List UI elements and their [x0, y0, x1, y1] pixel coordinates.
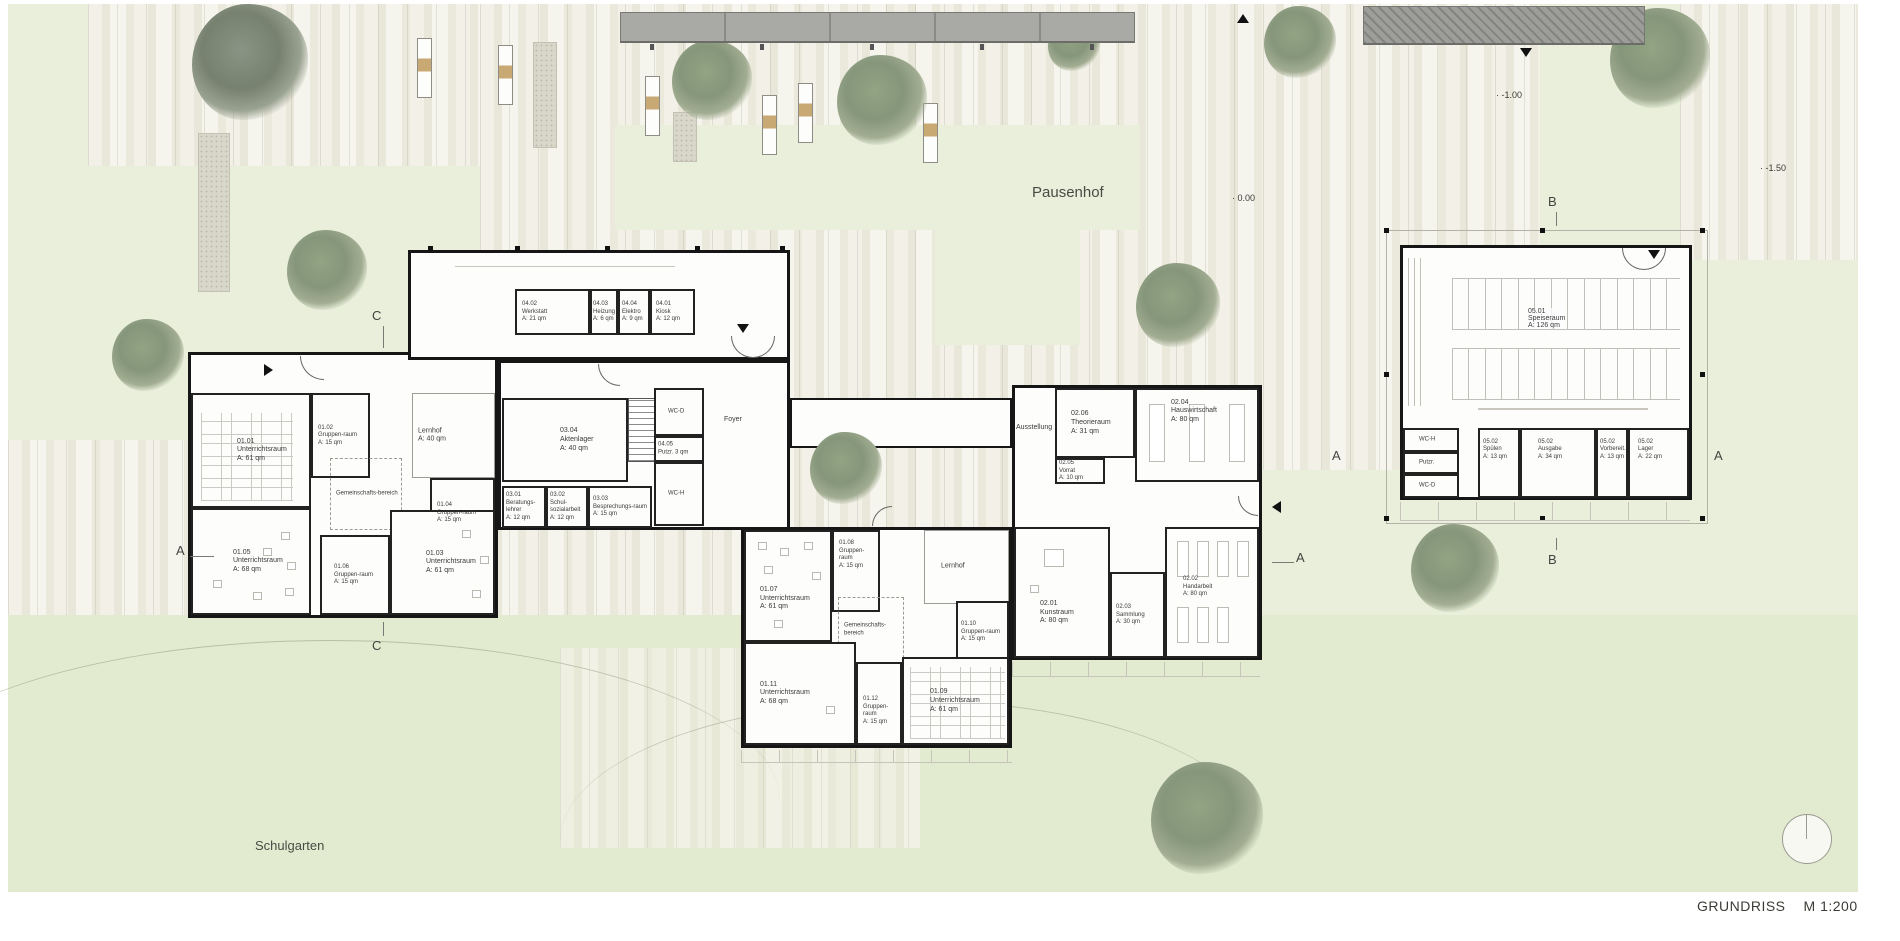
- existing-building-northeast: [1363, 6, 1645, 45]
- planter-hedge: [198, 133, 230, 292]
- room-0112: 01.12Gruppen-raumA: 15 qm: [856, 662, 902, 745]
- section-mark-c-top: C: [372, 308, 381, 323]
- entry-arrow: [1520, 48, 1532, 57]
- room-0502-lager: 05.02LagerA: 22 qm: [1628, 428, 1689, 498]
- elevation-mark-1: · -1.00: [1496, 90, 1522, 100]
- steps-south-cluster2: [741, 750, 1012, 763]
- site-plan-drawing: 01.01UnterrichtsraumA: 61 qm 01.02Gruppe…: [0, 0, 1900, 941]
- room-0502-vorbereitung: 05.02Vorbereit.A: 13 qm: [1596, 428, 1628, 498]
- bench: [923, 103, 938, 163]
- serving-counter-line: [1478, 408, 1648, 410]
- bench: [645, 76, 660, 136]
- section-mark-c-bottom: C: [372, 638, 381, 653]
- schulgarten-label: Schulgarten: [255, 838, 324, 853]
- room-0111: 01.11UnterrichtsraumA: 68 qm: [744, 642, 856, 745]
- room-wc-h-canteen: WC-H: [1403, 428, 1459, 452]
- column: [428, 246, 433, 251]
- column-post: [650, 44, 654, 50]
- section-line: [1272, 562, 1294, 563]
- elevation-mark-0: · 0.00: [1232, 193, 1255, 203]
- clerestory-window: [455, 266, 675, 267]
- section-line: [190, 556, 214, 557]
- room-0202: 02.02HandarbeitA: 80 qm: [1165, 527, 1259, 658]
- room-foyer-label: Foyer: [724, 416, 742, 423]
- room-putzraum-canteen: Putzr.: [1403, 452, 1459, 474]
- room-0205: 02.05VorratA: 10 qm: [1055, 458, 1105, 484]
- entry-arrow-specialist: [1272, 501, 1281, 513]
- section-line: [383, 622, 384, 636]
- section-mark-b-top: B: [1548, 194, 1557, 209]
- column: [605, 246, 610, 251]
- bench: [417, 38, 432, 98]
- cloakroom-lines: [1408, 258, 1426, 406]
- bench: [762, 95, 777, 155]
- column: [1384, 372, 1389, 377]
- room-0301: 03.01Beratungs-lehrerA: 12 qm: [502, 486, 546, 528]
- north-indicator: [1782, 814, 1832, 864]
- column: [695, 246, 700, 251]
- column-post: [980, 44, 984, 50]
- column: [1700, 372, 1705, 377]
- elevation-mark-2: · -1.50: [1760, 163, 1786, 173]
- column: [515, 246, 520, 251]
- section-mark-a-right: A: [1296, 550, 1305, 565]
- drawing-title: GRUNDRISSM 1:200: [1697, 898, 1876, 914]
- room-0105: 01.05UnterrichtsraumA: 68 qm: [191, 508, 311, 615]
- room-0402: 04.02WerkstattA: 21 qm: [515, 289, 590, 335]
- column: [1384, 228, 1389, 233]
- room-0501-label: 05.01SpeiseraumA: 126 qm: [1528, 308, 1565, 329]
- room-0405-putzraum: 04.05Putzr. 3 qm: [654, 436, 704, 462]
- room-0106: 01.06Gruppen-raumA: 15 qm: [320, 535, 390, 615]
- room-0303: 03.03Besprechungs-raumA: 15 qm: [588, 486, 652, 528]
- room-0304: 03.04AktenlagerA: 40 qm: [502, 398, 628, 482]
- existing-building-north: [620, 12, 1135, 43]
- room-wc-d: WC-D: [654, 388, 704, 436]
- section-mark-a-left: A: [176, 543, 185, 558]
- column: [1700, 516, 1705, 521]
- entry-arrow-cluster1: [264, 364, 273, 376]
- room-0404: 04.04ElektroA: 9 qm: [618, 289, 650, 335]
- entry-arrow-workshop: [737, 324, 749, 333]
- room-wc-d-canteen: WC-D: [1403, 474, 1459, 498]
- section-mark-a-canteen-left: A: [1332, 448, 1341, 463]
- column: [1540, 228, 1545, 233]
- room-lernhof-east: Lernhof: [924, 530, 1009, 604]
- room-0206: 02.06TheorieraumA: 31 qm: [1055, 388, 1135, 458]
- column-post: [760, 44, 764, 50]
- room-0109: 01.09UnterrichtsraumA: 61 qm: [902, 657, 1009, 745]
- room-lernhof-west: LernhofA: 40 qm: [412, 393, 495, 478]
- section-line: [1556, 212, 1557, 226]
- column-post: [1090, 44, 1094, 50]
- room-0302: 03.02Schul-sozialarbeitA: 12 qm: [546, 486, 588, 528]
- steps-south-canteen: [1400, 502, 1690, 521]
- pausenhof-label: Pausenhof: [1032, 184, 1104, 201]
- bench: [498, 45, 513, 105]
- steps-south-specialist: [1012, 662, 1260, 677]
- room-0502-spuelen: 05.02SpülenA: 13 qm: [1478, 428, 1520, 498]
- grass-patch-mid: [935, 230, 1080, 345]
- room-wc-h: WC-H: [654, 462, 704, 526]
- planter-hedge-3: [673, 112, 697, 162]
- north-entry-arrow: [1237, 14, 1249, 23]
- column: [1700, 228, 1705, 233]
- room-0101: 01.01UnterrichtsraumA: 61 qm: [191, 393, 311, 508]
- section-mark-a-canteen-right: A: [1714, 448, 1723, 463]
- room-0502-ausgabe: 05.02AusgabeA: 34 qm: [1520, 428, 1596, 498]
- staircase: [628, 398, 656, 462]
- room-0107: 01.07UnterrichtsraumA: 61 qm: [744, 530, 832, 642]
- planter-hedge-2: [533, 42, 557, 148]
- room-0203: 02.03SammlungA: 30 qm: [1110, 572, 1165, 658]
- entry-arrow-canteen: [1648, 250, 1660, 259]
- canteen-tables-row1: [1452, 278, 1680, 330]
- column: [1384, 516, 1389, 521]
- room-0201: 02.01KunstraumA: 80 qm: [1014, 527, 1110, 658]
- room-0103: 01.03UnterrichtsraumA: 61 qm: [390, 510, 495, 615]
- room-0403: 04.03HeizungA: 6 qm: [590, 289, 618, 335]
- column: [780, 246, 785, 251]
- bench: [798, 83, 813, 143]
- section-mark-b-bottom: B: [1548, 552, 1557, 567]
- room-ausstellung-label: Ausstellung: [1016, 424, 1052, 431]
- section-line: [1556, 538, 1557, 550]
- canteen-tables-row2: [1452, 348, 1680, 400]
- column-post: [870, 44, 874, 50]
- room-0110: 01.10Gruppen-raumA: 15 qm: [956, 601, 1009, 663]
- room-0401: 04.01KioskA: 12 qm: [650, 289, 695, 335]
- room-0204: 02.04HauswirtschaftA: 80 qm: [1135, 388, 1259, 482]
- section-line: [383, 326, 384, 348]
